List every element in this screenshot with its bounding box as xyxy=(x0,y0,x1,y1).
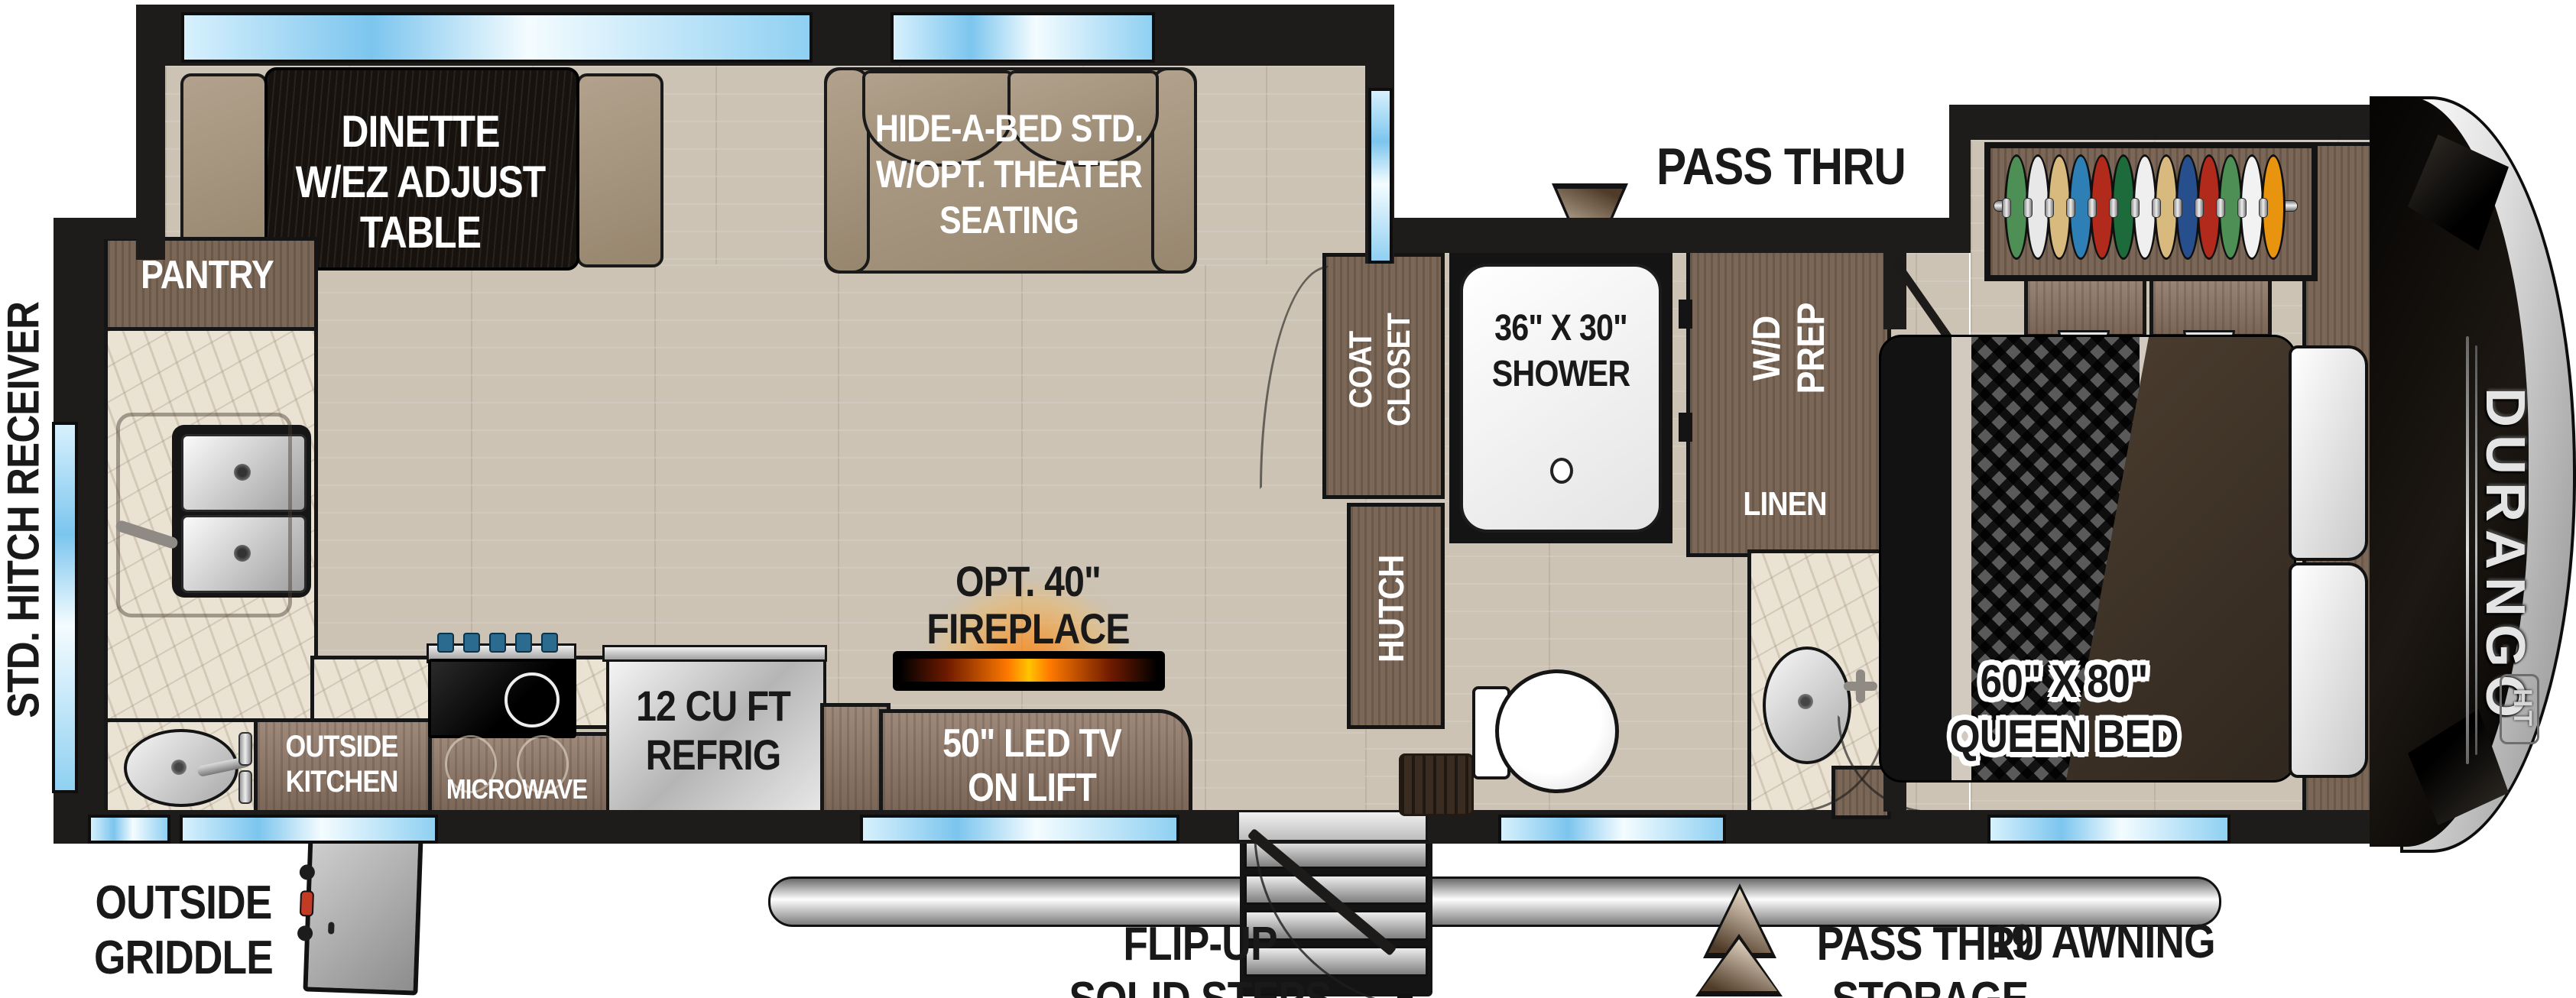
wd-door-notch xyxy=(1679,413,1692,442)
sofa-window xyxy=(891,12,1155,63)
sink-drain xyxy=(1798,694,1813,709)
griddle-dot xyxy=(328,922,335,934)
rear-top-wall xyxy=(54,218,153,239)
awning-label: 19' AWNING xyxy=(1977,917,2227,968)
flip-up-counter-outline xyxy=(116,413,292,617)
outside-kitchen-label: OUTSIDEKITCHEN xyxy=(266,729,417,799)
rear-window xyxy=(52,422,78,793)
burner xyxy=(504,672,560,727)
queen-bed-label: 60" X 80"QUEEN BED xyxy=(1913,654,2215,764)
coat-closet-label: COATCLOSET xyxy=(1342,267,1418,473)
bed-pillow xyxy=(2289,345,2368,561)
outside-kitchen-sink xyxy=(124,729,238,807)
cap-pinstripe xyxy=(2466,336,2469,764)
shower-label: 36" X 30"SHOWER xyxy=(1465,306,1656,397)
counter-hinge xyxy=(238,732,252,766)
kitchen-window xyxy=(180,815,438,844)
dinette-label: DINETTEW/EZ ADJUSTTABLE xyxy=(243,107,598,258)
divider-wall-top xyxy=(1883,238,1906,329)
arrow-up-icon xyxy=(1695,934,1783,996)
dinette-window xyxy=(181,12,813,63)
cooktop-knob xyxy=(489,633,506,653)
counter-hinge xyxy=(238,770,252,804)
fireplace-flame xyxy=(900,659,1157,682)
hide-a-bed-label: HIDE-A-BED STD.W/OPT. THEATERSEATING xyxy=(861,105,1157,243)
cooktop-knob xyxy=(463,633,480,653)
shower-pan xyxy=(1460,264,1662,533)
cooktop xyxy=(428,659,576,738)
fireplace-label: OPT. 40"FIREPLACE xyxy=(910,558,1147,653)
wardrobe-closet xyxy=(1984,142,2318,281)
refrigerator-label: 12 CU FTREFRIG xyxy=(621,682,806,779)
refrigerator-top-vent xyxy=(602,645,827,662)
cooktop-knob xyxy=(541,633,558,653)
shower-stall xyxy=(1449,253,1672,543)
hitch-label-line1: STD. HITCH RECEIVER xyxy=(1,254,49,766)
shower-drain xyxy=(1550,458,1573,484)
cooktop-knob xyxy=(515,633,532,653)
floorplan-canvas: OUTSIDEGRIDDLE FLIP-UPSOLID STEPS PASS T… xyxy=(0,0,2576,998)
tv-label: 50" LED TVON LIFT xyxy=(907,721,1157,810)
hutch-label: HUTCH xyxy=(1373,527,1411,692)
wd-prep-label: W/DPREP xyxy=(1744,245,1833,452)
slideout-end-window xyxy=(1368,88,1393,264)
fireplace xyxy=(893,651,1165,691)
bedroom-step-wall xyxy=(1949,105,1971,253)
toilet-bowl xyxy=(1495,669,1619,793)
clothes-hanger xyxy=(2261,154,2286,260)
sink-drain xyxy=(171,760,187,775)
bottom-window xyxy=(88,815,170,844)
wd-door-notch xyxy=(1679,300,1692,329)
vanity-faucet-handle xyxy=(1856,669,1865,703)
bedroom-top-wall xyxy=(1949,105,2438,140)
mid-top-wall xyxy=(1365,218,1971,253)
bedroom-window xyxy=(1987,815,2230,844)
microwave-label: MICROWAVE xyxy=(433,775,601,805)
bed-pillow xyxy=(2289,562,2368,778)
tv-window xyxy=(860,815,1179,844)
bath-window xyxy=(1498,815,1726,844)
entry-mat xyxy=(1399,753,1474,816)
brand-series-badge: HT xyxy=(2500,674,2539,744)
pantry-label: PANTRY xyxy=(118,254,296,296)
outside-griddle xyxy=(303,832,423,995)
cooktop-knob xyxy=(437,633,454,653)
outside-griddle-label: OUTSIDEGRIDDLE xyxy=(65,876,302,986)
linen-label: LINEN xyxy=(1703,486,1867,523)
